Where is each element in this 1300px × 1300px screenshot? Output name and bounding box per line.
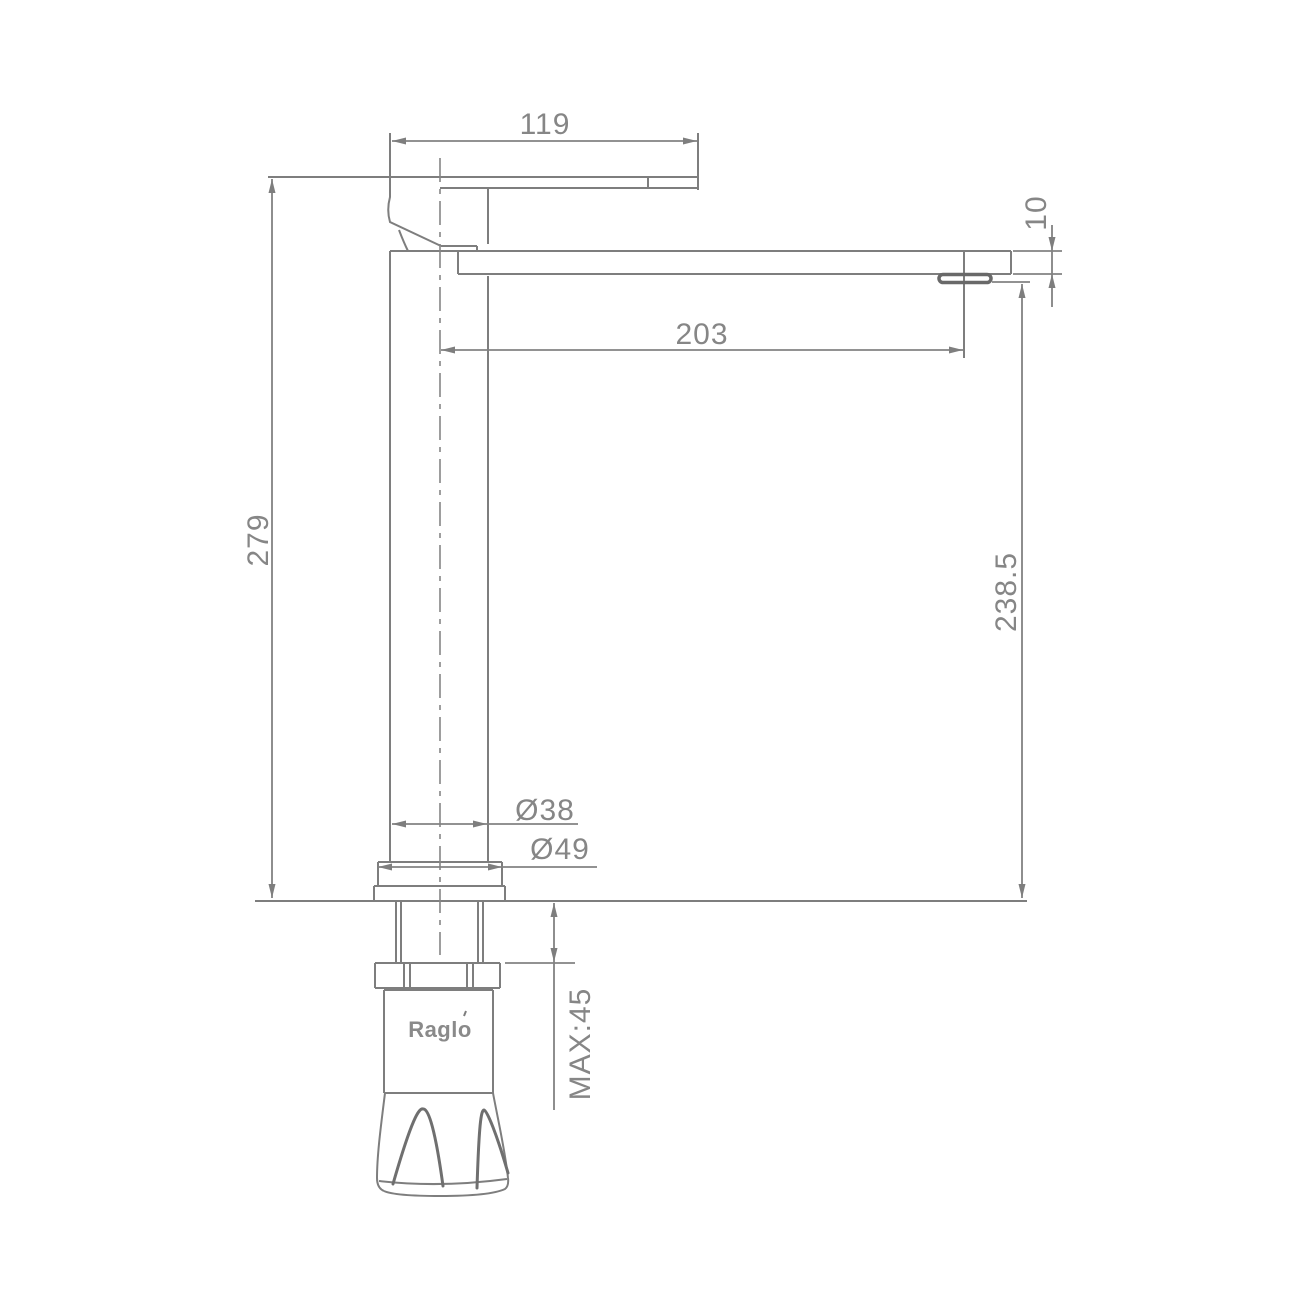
faucet-technical-drawing-page: Raglo 119 [0, 0, 1300, 1300]
skirt-left-wing [393, 1109, 443, 1186]
dim-label-body-diameter: Ø38 [515, 794, 575, 827]
dim-spout-thickness: 10 [1013, 195, 1062, 307]
dim-label-overall-height: 279 [242, 513, 275, 566]
dim-label-base-diameter: Ø49 [530, 833, 590, 866]
dim-spout-reach: 203 [441, 318, 963, 354]
faucet-outline: Raglo [255, 133, 1027, 1196]
dim-label-handle-length: 119 [520, 108, 571, 141]
dim-handle-length: 119 [392, 108, 697, 145]
dim-outlet-height: 238.5 [990, 282, 1030, 898]
dim-body-diameter: Ø38 [392, 794, 578, 828]
faucet-technical-drawing: Raglo 119 [0, 0, 1300, 1300]
handle-lever-outline [268, 133, 698, 251]
fixing-skirt-outline [377, 1093, 508, 1196]
supply-body-outline: Raglo [384, 990, 493, 1093]
dim-max-mount-thickness: MAX:45 [505, 903, 597, 1110]
brand-trademark-tick [464, 1011, 466, 1016]
dim-label-outlet-height: 238.5 [990, 552, 1023, 632]
dim-label-max-mount-thickness: MAX:45 [564, 988, 597, 1101]
lock-nut-outline [375, 963, 500, 988]
dim-overall-height: 279 [242, 179, 276, 898]
dimension-annotations: 119 203 279 10 [242, 108, 1062, 1110]
dim-label-spout-reach: 203 [675, 318, 728, 351]
dim-label-spout-thickness: 10 [1020, 195, 1053, 230]
brand-logo: Raglo [408, 1017, 472, 1042]
